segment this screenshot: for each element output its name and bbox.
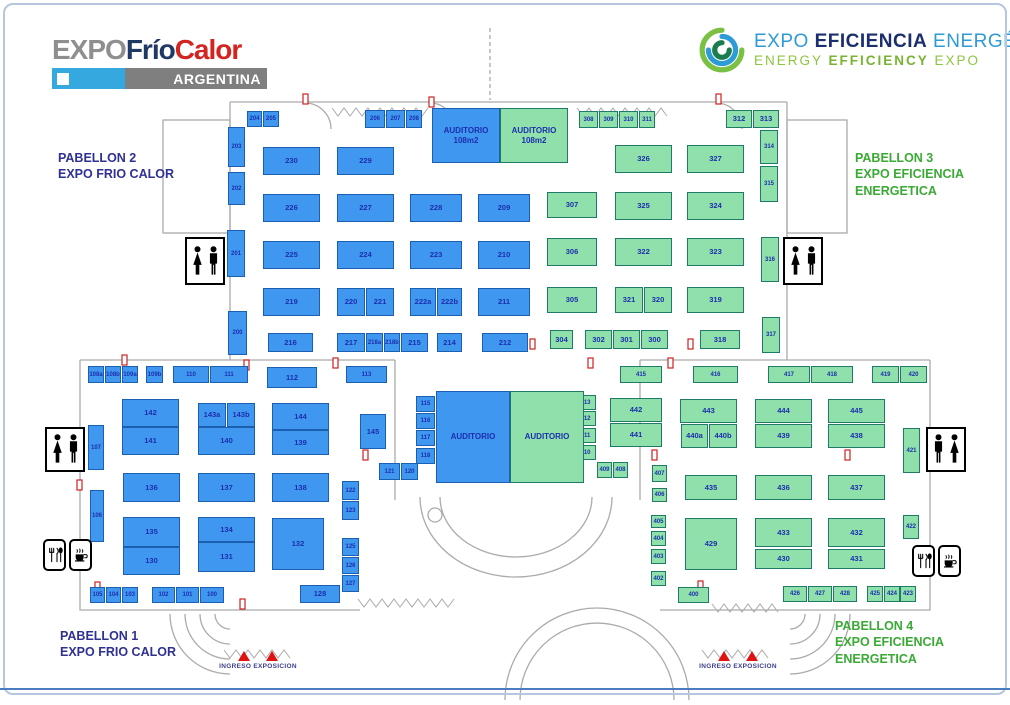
cutlery-icon: [43, 539, 66, 571]
logo-expo-frio-calor: EXPOFríoCalor ARGENTINA: [52, 34, 267, 89]
entrance-left-label: INGRESO EXPOSICION: [208, 663, 308, 670]
booth-205: 205: [263, 111, 279, 127]
booth-127: 127: [342, 575, 359, 592]
logo-frio-calor-title: EXPOFríoCalor: [52, 34, 267, 66]
booth-423: 423: [900, 586, 916, 602]
booth-425: 425: [867, 586, 883, 602]
entrance-right: INGRESO EXPOSICION: [688, 651, 788, 670]
booth-206: 206: [365, 110, 385, 128]
booth-318: 318: [700, 330, 740, 349]
booth-316: 316: [761, 237, 779, 282]
booth-139: 139: [272, 430, 329, 455]
booth-326: 326: [615, 145, 672, 173]
auditorium-g: AUDITORIO108m2: [500, 108, 568, 163]
booth-116: 116: [416, 413, 435, 429]
booth-301: 301: [613, 330, 640, 349]
booth-222a: 222a: [410, 288, 436, 316]
booth-105: 105: [90, 587, 105, 603]
booth-438: 438: [828, 424, 885, 448]
booth-218a: 218a: [366, 333, 383, 352]
booth-315: 315: [760, 166, 778, 202]
booth-227: 227: [337, 194, 394, 222]
logo-eficiencia-line2: ENERGY EFFICIENCY EXPO: [754, 53, 1010, 68]
woman-icon: [191, 242, 204, 280]
booth-305: 305: [547, 287, 597, 313]
booth-415: 415: [620, 366, 662, 383]
booth-203: 203: [228, 127, 245, 167]
booth-115: 115: [416, 396, 435, 412]
booth-429: 429: [685, 518, 737, 570]
restroom-icon-top-right: [783, 237, 823, 285]
booth-140: 140: [198, 427, 255, 455]
booth-432: 432: [828, 518, 885, 547]
logo-frio-calor-bar: ARGENTINA: [52, 68, 267, 89]
logo-gray-segment: ARGENTINA: [125, 68, 267, 89]
booth-417: 417: [768, 366, 810, 383]
booth-120: 120: [401, 463, 418, 480]
auditorium-g: AUDITORIO: [510, 391, 584, 483]
booth-302: 302: [585, 330, 612, 349]
booth-110: 110: [173, 366, 209, 383]
label-pabellon-3: PABELLON 3 EXPO EFICIENCIA ENERGETICA: [855, 150, 964, 199]
logo-country: ARGENTINA: [173, 71, 267, 87]
booth-409: 409: [597, 462, 612, 478]
booth-103: 103: [122, 587, 138, 603]
booth-109a: 109a: [122, 366, 138, 383]
booth-317: 317: [762, 317, 780, 353]
booth-113: 113: [346, 366, 387, 383]
coffee-icon: [69, 539, 92, 571]
booth-403: 403: [651, 549, 666, 564]
booth-222b: 222b: [437, 288, 462, 316]
booth-layer: 2042052062072082032022012002302292262272…: [0, 0, 1010, 705]
logo-expo-eficiencia: EXPO EFICIENCIA ENERGÉTICA ENERGY EFFICI…: [698, 26, 1010, 74]
booth-108b: 108b: [105, 366, 121, 383]
booth-421: 421: [903, 428, 920, 473]
booth-226: 226: [263, 194, 320, 222]
booth-126: 126: [342, 557, 359, 574]
booth-108a: 108a: [88, 366, 104, 383]
booth-211: 211: [478, 288, 530, 316]
booth-424: 424: [884, 586, 900, 602]
booth-217: 217: [337, 333, 365, 352]
booth-444: 444: [755, 399, 812, 423]
booth-311: 311: [639, 111, 655, 128]
booth-136: 136: [123, 473, 180, 502]
booth-430: 430: [755, 549, 812, 569]
booth-125: 125: [342, 538, 359, 556]
booth-104: 104: [106, 587, 121, 603]
booth-121: 121: [379, 463, 400, 480]
auditorium-b: AUDITORIO108m2: [432, 108, 500, 163]
red-triangle-icon: [746, 651, 758, 661]
booth-144: 144: [272, 403, 329, 430]
booth-437: 437: [828, 475, 885, 500]
booth-408: 408: [613, 462, 628, 478]
red-triangle-icon: [718, 651, 730, 661]
man-icon: [932, 431, 945, 467]
booth-319: 319: [687, 287, 744, 313]
booth-132: 132: [272, 518, 324, 570]
booth-209: 209: [478, 194, 530, 222]
woman-icon: [948, 431, 961, 467]
booth-419: 419: [872, 366, 899, 383]
booth-314: 314: [760, 130, 778, 164]
booth-442: 442: [610, 398, 662, 422]
booth-441: 441: [610, 423, 662, 447]
booth-416: 416: [693, 366, 738, 383]
entrance-right-label: INGRESO EXPOSICION: [688, 663, 788, 670]
booth-122: 122: [342, 481, 359, 500]
booth-109b: 109b: [146, 366, 163, 383]
booth-118: 118: [416, 448, 435, 464]
man-icon: [67, 431, 80, 467]
logo-blue-segment: [52, 68, 125, 89]
booth-219: 219: [263, 288, 320, 316]
man-icon: [805, 242, 818, 280]
booth-320: 320: [644, 287, 672, 313]
booth-223: 223: [410, 241, 462, 269]
food-icons-left: [43, 539, 92, 571]
label-pabellon-4: PABELLON 4 EXPO EFICIENCIA ENERGETICA: [835, 618, 944, 667]
label-pabellon-1: PABELLON 1 EXPO FRIO CALOR: [60, 628, 176, 661]
booth-215: 215: [401, 333, 428, 352]
booth-431: 431: [828, 549, 885, 569]
entrance-left: INGRESO EXPOSICION: [208, 651, 308, 670]
booth-443: 443: [680, 399, 737, 423]
man-icon: [207, 242, 220, 280]
booth-208: 208: [406, 110, 422, 128]
booth-102: 102: [152, 587, 175, 603]
booth-304: 304: [550, 330, 573, 349]
booth-134: 134: [198, 517, 255, 542]
booth-422: 422: [903, 515, 919, 539]
booth-221: 221: [366, 288, 394, 316]
booth-145: 145: [360, 414, 386, 449]
booth-323: 323: [687, 238, 744, 266]
booth-101: 101: [176, 587, 199, 603]
booth-406: 406: [652, 488, 667, 502]
booth-440b: 440b: [709, 424, 737, 448]
booth-214: 214: [437, 333, 462, 352]
booth-420: 420: [900, 366, 927, 383]
booth-117: 117: [416, 430, 435, 446]
booth-131: 131: [198, 542, 255, 572]
booth-224: 224: [337, 241, 394, 269]
booth-307: 307: [547, 192, 597, 218]
woman-icon: [789, 242, 802, 280]
red-triangle-icon: [266, 651, 278, 661]
booth-225: 225: [263, 241, 320, 269]
booth-428: 428: [833, 586, 857, 602]
booth-325: 325: [615, 192, 672, 220]
booth-310: 310: [619, 111, 638, 128]
booth-141: 141: [122, 427, 179, 455]
swirl-logo-icon: [698, 26, 746, 74]
booth-229: 229: [337, 147, 394, 175]
booth-130: 130: [123, 547, 180, 575]
booth-216: 216: [268, 333, 313, 352]
booth-100: 100: [200, 587, 224, 603]
label-pabellon-2: PABELLON 2 EXPO FRIO CALOR: [58, 150, 174, 183]
auditorium-b: AUDITORIO: [436, 391, 510, 483]
booth-123: 123: [342, 501, 359, 520]
logo-eficiencia-line1: EXPO EFICIENCIA ENERGÉTICA: [754, 32, 1010, 53]
booth-212: 212: [482, 333, 528, 352]
entrance-right-triangles: [688, 651, 788, 661]
cutlery-icon: [912, 545, 935, 577]
booth-138: 138: [272, 473, 329, 502]
booth-405: 405: [651, 515, 666, 528]
booth-439: 439: [755, 424, 812, 448]
booth-427: 427: [808, 586, 832, 602]
booth-313: 313: [753, 110, 779, 128]
logo-white-square: [57, 73, 69, 85]
booth-402: 402: [651, 571, 666, 586]
booth-111: 111: [210, 366, 248, 383]
restroom-icon-mid-right: [926, 427, 966, 472]
booth-327: 327: [687, 145, 744, 173]
booth-230: 230: [263, 147, 320, 175]
booth-204: 204: [247, 111, 262, 127]
booth-407: 407: [652, 465, 667, 482]
booth-143b: 143b: [227, 403, 255, 427]
booth-404: 404: [651, 531, 666, 546]
restroom-icon-top-left: [185, 237, 225, 285]
booth-300: 300: [641, 330, 668, 349]
booth-321: 321: [615, 287, 643, 313]
booth-445: 445: [828, 399, 885, 423]
booth-107: 107: [88, 425, 104, 470]
entrance-left-triangles: [208, 651, 308, 661]
booth-433: 433: [755, 518, 812, 547]
booth-142: 142: [122, 399, 179, 427]
booth-143a: 143a: [198, 403, 226, 427]
booth-137: 137: [198, 473, 255, 502]
booth-308: 308: [579, 111, 598, 128]
booth-324: 324: [687, 192, 744, 220]
booth-312: 312: [726, 110, 752, 128]
booth-228: 228: [410, 194, 462, 222]
coffee-icon: [938, 545, 961, 577]
booth-309: 309: [599, 111, 618, 128]
restroom-icon-mid-left: [45, 427, 85, 472]
booth-435: 435: [685, 475, 737, 500]
booth-135: 135: [123, 517, 180, 547]
booth-128: 128: [300, 585, 340, 603]
booth-210: 210: [478, 241, 530, 269]
booth-400: 400: [678, 587, 709, 603]
booth-207: 207: [386, 110, 405, 128]
booth-322: 322: [615, 238, 672, 266]
booth-440a: 440a: [681, 424, 708, 448]
booth-426: 426: [783, 586, 807, 602]
booth-218b: 218b: [384, 333, 400, 352]
booth-436: 436: [755, 475, 812, 500]
food-icons-right: [912, 545, 961, 577]
booth-201: 201: [227, 230, 245, 277]
booth-200: 200: [228, 311, 247, 355]
bottom-divider: [0, 688, 1010, 690]
woman-icon: [51, 431, 64, 467]
booth-220: 220: [337, 288, 365, 316]
red-triangle-icon: [238, 651, 250, 661]
booth-306: 306: [547, 238, 597, 266]
booth-202: 202: [228, 172, 245, 205]
booth-112: 112: [267, 367, 317, 388]
booth-418: 418: [811, 366, 853, 383]
booth-106: 106: [90, 490, 104, 542]
